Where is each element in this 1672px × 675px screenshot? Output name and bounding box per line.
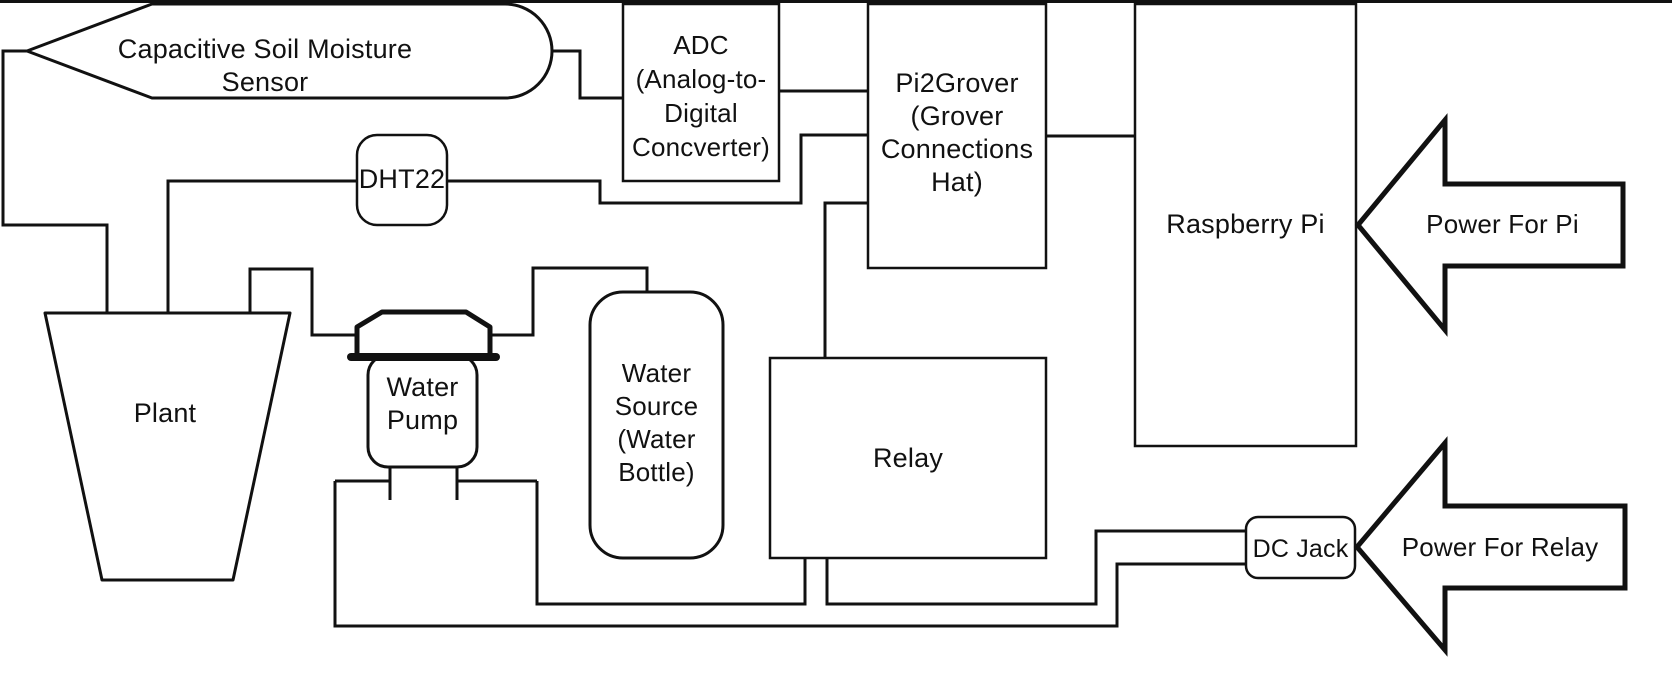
pi2grover-label: Pi2Grover (Grover Connections Hat) xyxy=(867,67,1047,199)
wire-dht22-to-plant xyxy=(168,181,357,313)
diagram-canvas xyxy=(0,0,1672,675)
sensor-label: Capacitive Soil Moisture Sensor xyxy=(85,33,445,99)
adc-label: ADC (Analog-to- Digital Concverter) xyxy=(619,28,783,164)
plant-pot-shape xyxy=(45,313,290,580)
wire-pump-legs xyxy=(390,467,457,500)
diagram-page: Capacitive Soil Moisture Sensor ADC (Ana… xyxy=(0,0,1672,675)
power-for-relay-label: Power For Relay xyxy=(1368,531,1632,564)
wire-pi2grover-to-relay xyxy=(825,203,868,358)
wire-sensor-to-adc xyxy=(552,51,623,98)
water-pump-cap xyxy=(357,312,490,358)
dht22-label: DHT22 xyxy=(352,163,452,196)
water-pump-label: Water Pump xyxy=(362,371,483,437)
plant-label: Plant xyxy=(85,397,245,430)
relay-label: Relay xyxy=(838,442,978,475)
dc-jack-label: DC Jack xyxy=(1244,533,1357,566)
raspberry-pi-label: Raspberry Pi xyxy=(1135,208,1356,241)
power-for-pi-label: Power For Pi xyxy=(1385,208,1620,241)
water-source-label: Water Source (Water Bottle) xyxy=(586,357,727,489)
